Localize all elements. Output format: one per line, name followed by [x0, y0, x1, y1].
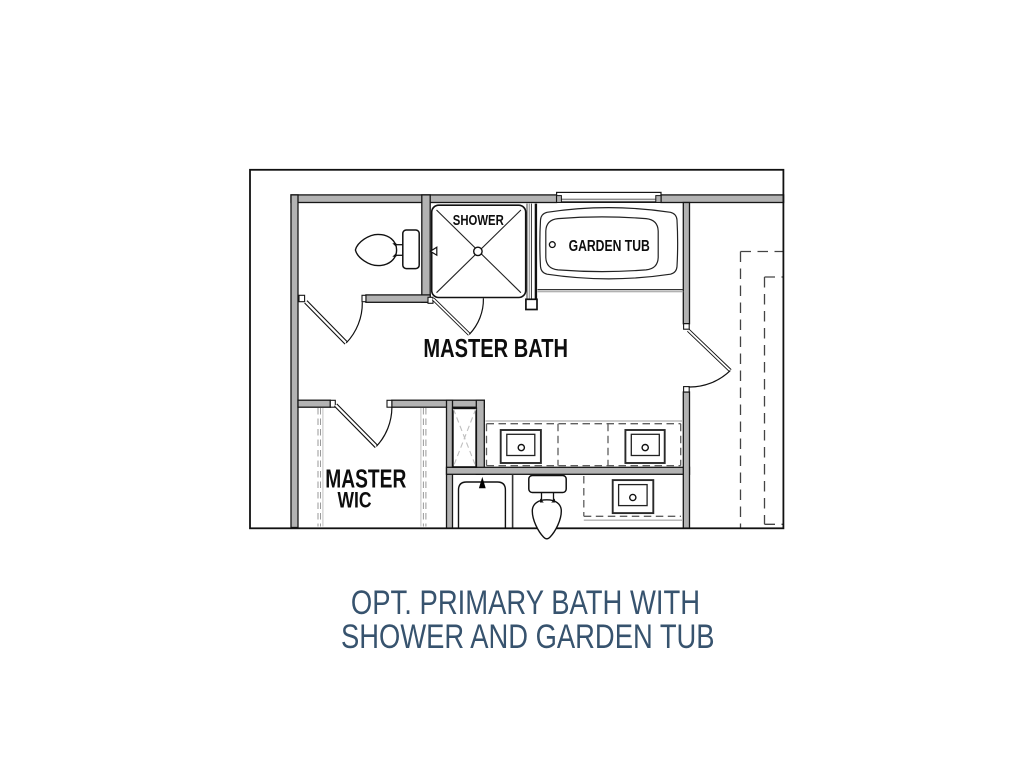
svg-text:SHOWER AND GARDEN TUB: SHOWER AND GARDEN TUB: [341, 618, 715, 656]
svg-text:SHOWER: SHOWER: [453, 213, 504, 229]
svg-text:WIC: WIC: [338, 487, 372, 512]
svg-text:OPT. PRIMARY BATH WITH: OPT. PRIMARY BATH WITH: [351, 584, 700, 622]
svg-text:MASTER BATH: MASTER BATH: [423, 335, 568, 363]
svg-text:GARDEN TUB: GARDEN TUB: [569, 238, 650, 255]
